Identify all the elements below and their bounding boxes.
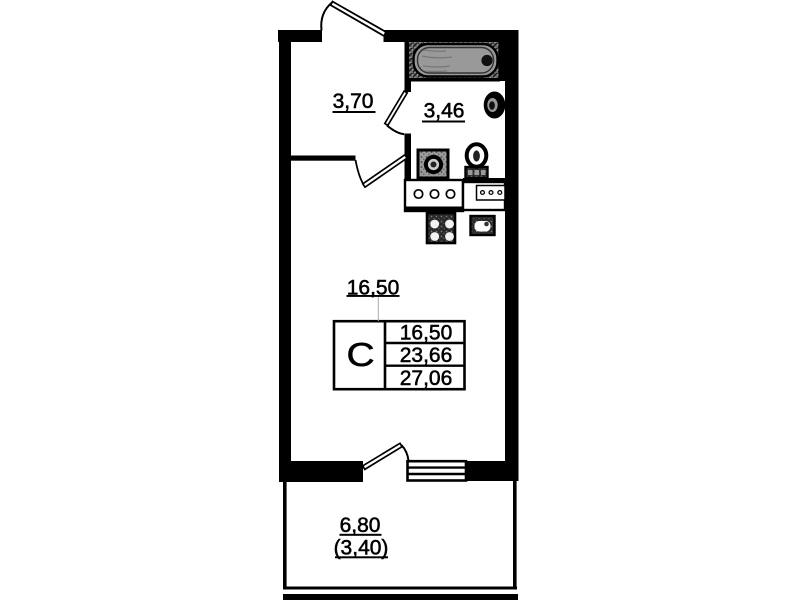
- svg-text:(3,40): (3,40): [334, 537, 389, 560]
- svg-text:27,06: 27,06: [400, 367, 453, 390]
- svg-text:6,80: 6,80: [340, 514, 381, 537]
- svg-text:3,70: 3,70: [333, 90, 374, 113]
- svg-text:С: С: [346, 336, 374, 373]
- svg-text:23,66: 23,66: [400, 344, 453, 367]
- svg-text:3,46: 3,46: [424, 100, 465, 123]
- svg-text:16,50: 16,50: [400, 321, 453, 344]
